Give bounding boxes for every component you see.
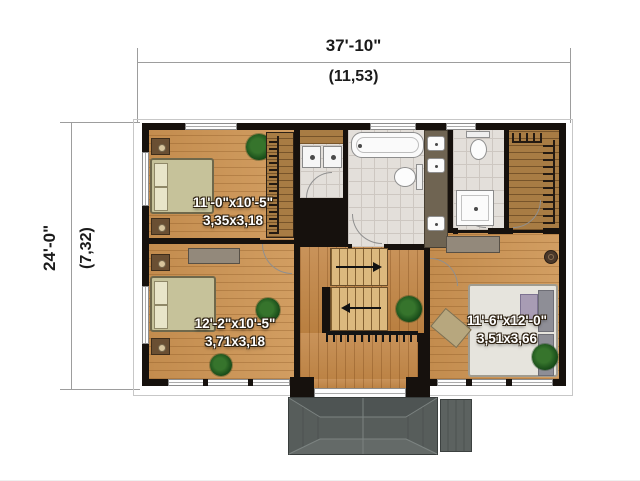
shower-icon (456, 190, 494, 226)
window-top-bedroom1 (185, 123, 237, 130)
bathtub-icon (351, 132, 424, 158)
window-left-bedroom2 (142, 286, 149, 344)
porch-roof (288, 397, 472, 457)
top-dimension-metric: (11,53) (137, 68, 570, 88)
stair-railing (326, 331, 418, 342)
wall-laundry-bottom-r (336, 198, 348, 203)
room-size-imperial: 11'-0"x10'-5" (158, 194, 308, 212)
sink-icon (427, 216, 445, 231)
stair-direction-arrow (336, 266, 374, 268)
washer-icon (302, 146, 321, 168)
room-label-bedroom-right: 11'-6"x12'-0" 3,51x3,66 (432, 312, 582, 348)
room-label-bedroom2: 12'-2"x10'-5" 3,71x3,18 (155, 315, 315, 351)
top-dimension-imperial: 37'-10" (137, 36, 570, 56)
window-left-bedroom1 (142, 152, 149, 206)
wall-bath-ensuite (448, 130, 453, 233)
wall-closet-bottom-r (543, 228, 559, 234)
room-size-imperial: 12'-2"x10'-5" (155, 315, 315, 333)
side-table-icon (544, 250, 558, 264)
dresser-icon (446, 236, 500, 253)
extension-line-left-top (60, 122, 140, 123)
stair-arrow-head-icon (373, 262, 387, 272)
toilet-bowl-icon (394, 167, 416, 187)
toilet-icon (416, 164, 423, 190)
wall-closet-bottom-l (509, 228, 513, 234)
top-dimension-line (137, 62, 570, 63)
porch-wall-stub-left (290, 377, 314, 398)
toilet-icon (466, 131, 490, 138)
laundry-shelf (300, 130, 343, 144)
wall-under-stairs (322, 287, 330, 333)
left-dimension-metric: (7,32) (78, 188, 100, 308)
window-mullion (506, 379, 512, 386)
extension-line-top-left (137, 48, 138, 123)
wall-corridor-bedright (418, 333, 424, 379)
window-top-bath (370, 123, 416, 130)
extension-line-left-bottom (60, 389, 140, 390)
closet-hanger-rod-icon (543, 140, 555, 224)
floor-plan-canvas: 37'-10" (11,53) 24'-0" (7,32) (0, 0, 640, 481)
wall-ensuite-bottom-l (453, 228, 458, 234)
window-mullion (203, 379, 208, 386)
room-size-metric: 3,35x3,18 (158, 212, 308, 230)
window-top-ensuite (446, 123, 476, 130)
plant-icon (396, 296, 422, 322)
wall-laundry-bath (343, 130, 348, 203)
nightstand-icon (151, 254, 170, 271)
dryer-icon (323, 146, 342, 168)
stair-direction-arrow (345, 307, 381, 309)
room-size-metric: 3,51x3,66 (432, 330, 582, 348)
wall-left-center-lower (294, 240, 300, 379)
wall-bed1-bed2 (149, 238, 260, 244)
window-bottom-right-band (437, 379, 553, 386)
extension-line-top-right (570, 48, 571, 123)
sink-icon (427, 136, 445, 151)
window-mullion (248, 379, 253, 386)
window-mullion (466, 379, 472, 386)
wall-ensuite-closet (504, 130, 509, 234)
nightstand-icon (151, 138, 170, 155)
left-dimension-imperial: 24'-0" (40, 188, 62, 308)
wall-bath-bottom-r (384, 244, 426, 250)
room-label-bedroom1: 11'-0"x10'-5" 3,35x3,18 (158, 194, 308, 230)
window-bottom-left-band (168, 379, 290, 386)
room-size-metric: 3,71x3,18 (155, 333, 315, 351)
sink-icon (427, 158, 445, 173)
toilet-bowl-icon (470, 139, 487, 160)
dresser-icon (188, 248, 240, 264)
plant-icon (210, 354, 232, 376)
porch-wall-stub-right (406, 377, 430, 398)
left-dimension-line (71, 122, 72, 390)
room-size-imperial: 11'-6"x12'-0" (432, 312, 582, 330)
closet-hanger-rod-icon (512, 133, 542, 143)
